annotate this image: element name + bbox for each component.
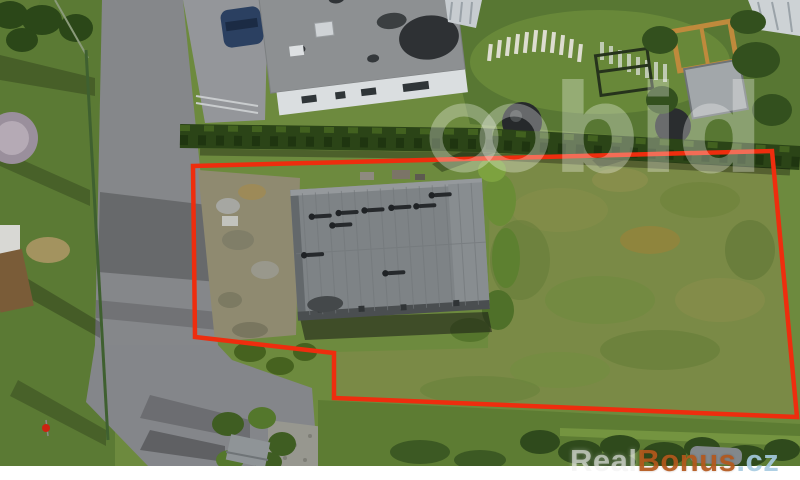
realbonus-bonus: Bonus xyxy=(637,443,736,478)
screenshot-stage: bid RealBonus.cz xyxy=(0,0,800,480)
main-building xyxy=(290,178,490,320)
dried-bush xyxy=(26,237,70,263)
red-flag xyxy=(42,424,50,432)
bid-watermark-text: bid xyxy=(552,59,762,201)
skylight xyxy=(314,21,334,37)
concrete-pad xyxy=(222,216,238,226)
roof-box xyxy=(289,45,304,57)
aerial-photo: bid xyxy=(0,0,800,466)
watermark-realbonus: RealBonus.cz xyxy=(570,443,779,479)
realbonus-tld: .cz xyxy=(736,443,779,478)
realbonus-real: Real xyxy=(570,443,637,478)
road-shadow xyxy=(98,192,218,282)
